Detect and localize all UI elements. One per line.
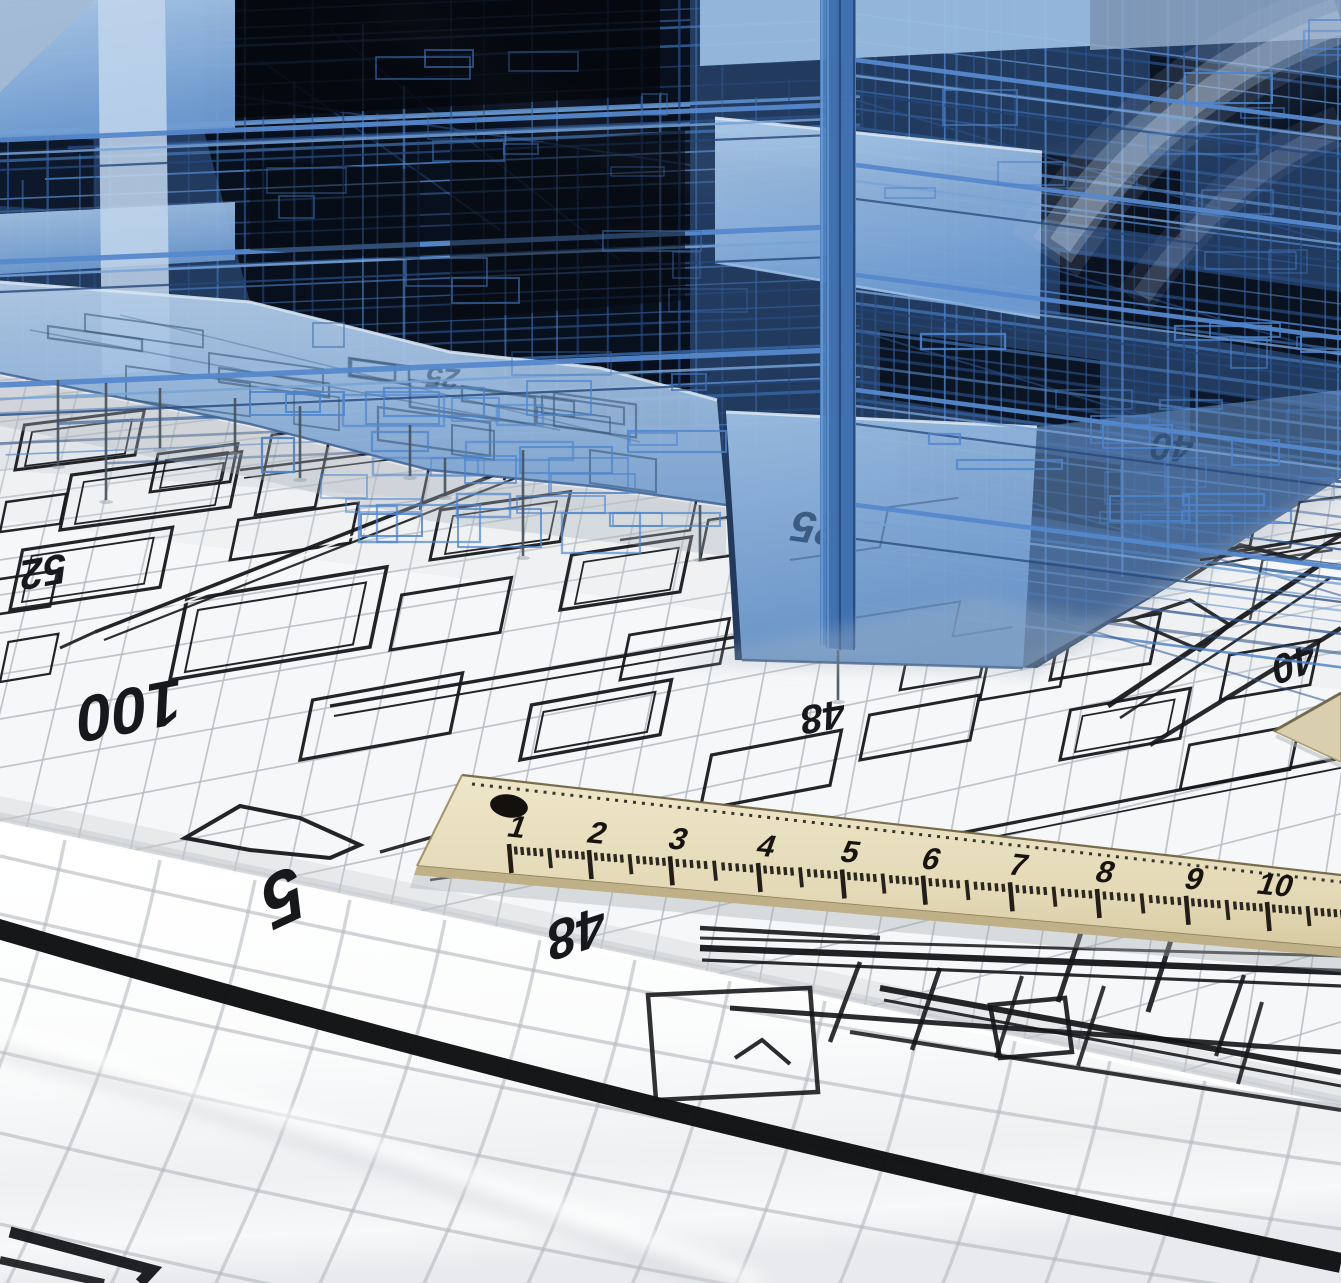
svg-text:52: 52 [18, 543, 67, 600]
